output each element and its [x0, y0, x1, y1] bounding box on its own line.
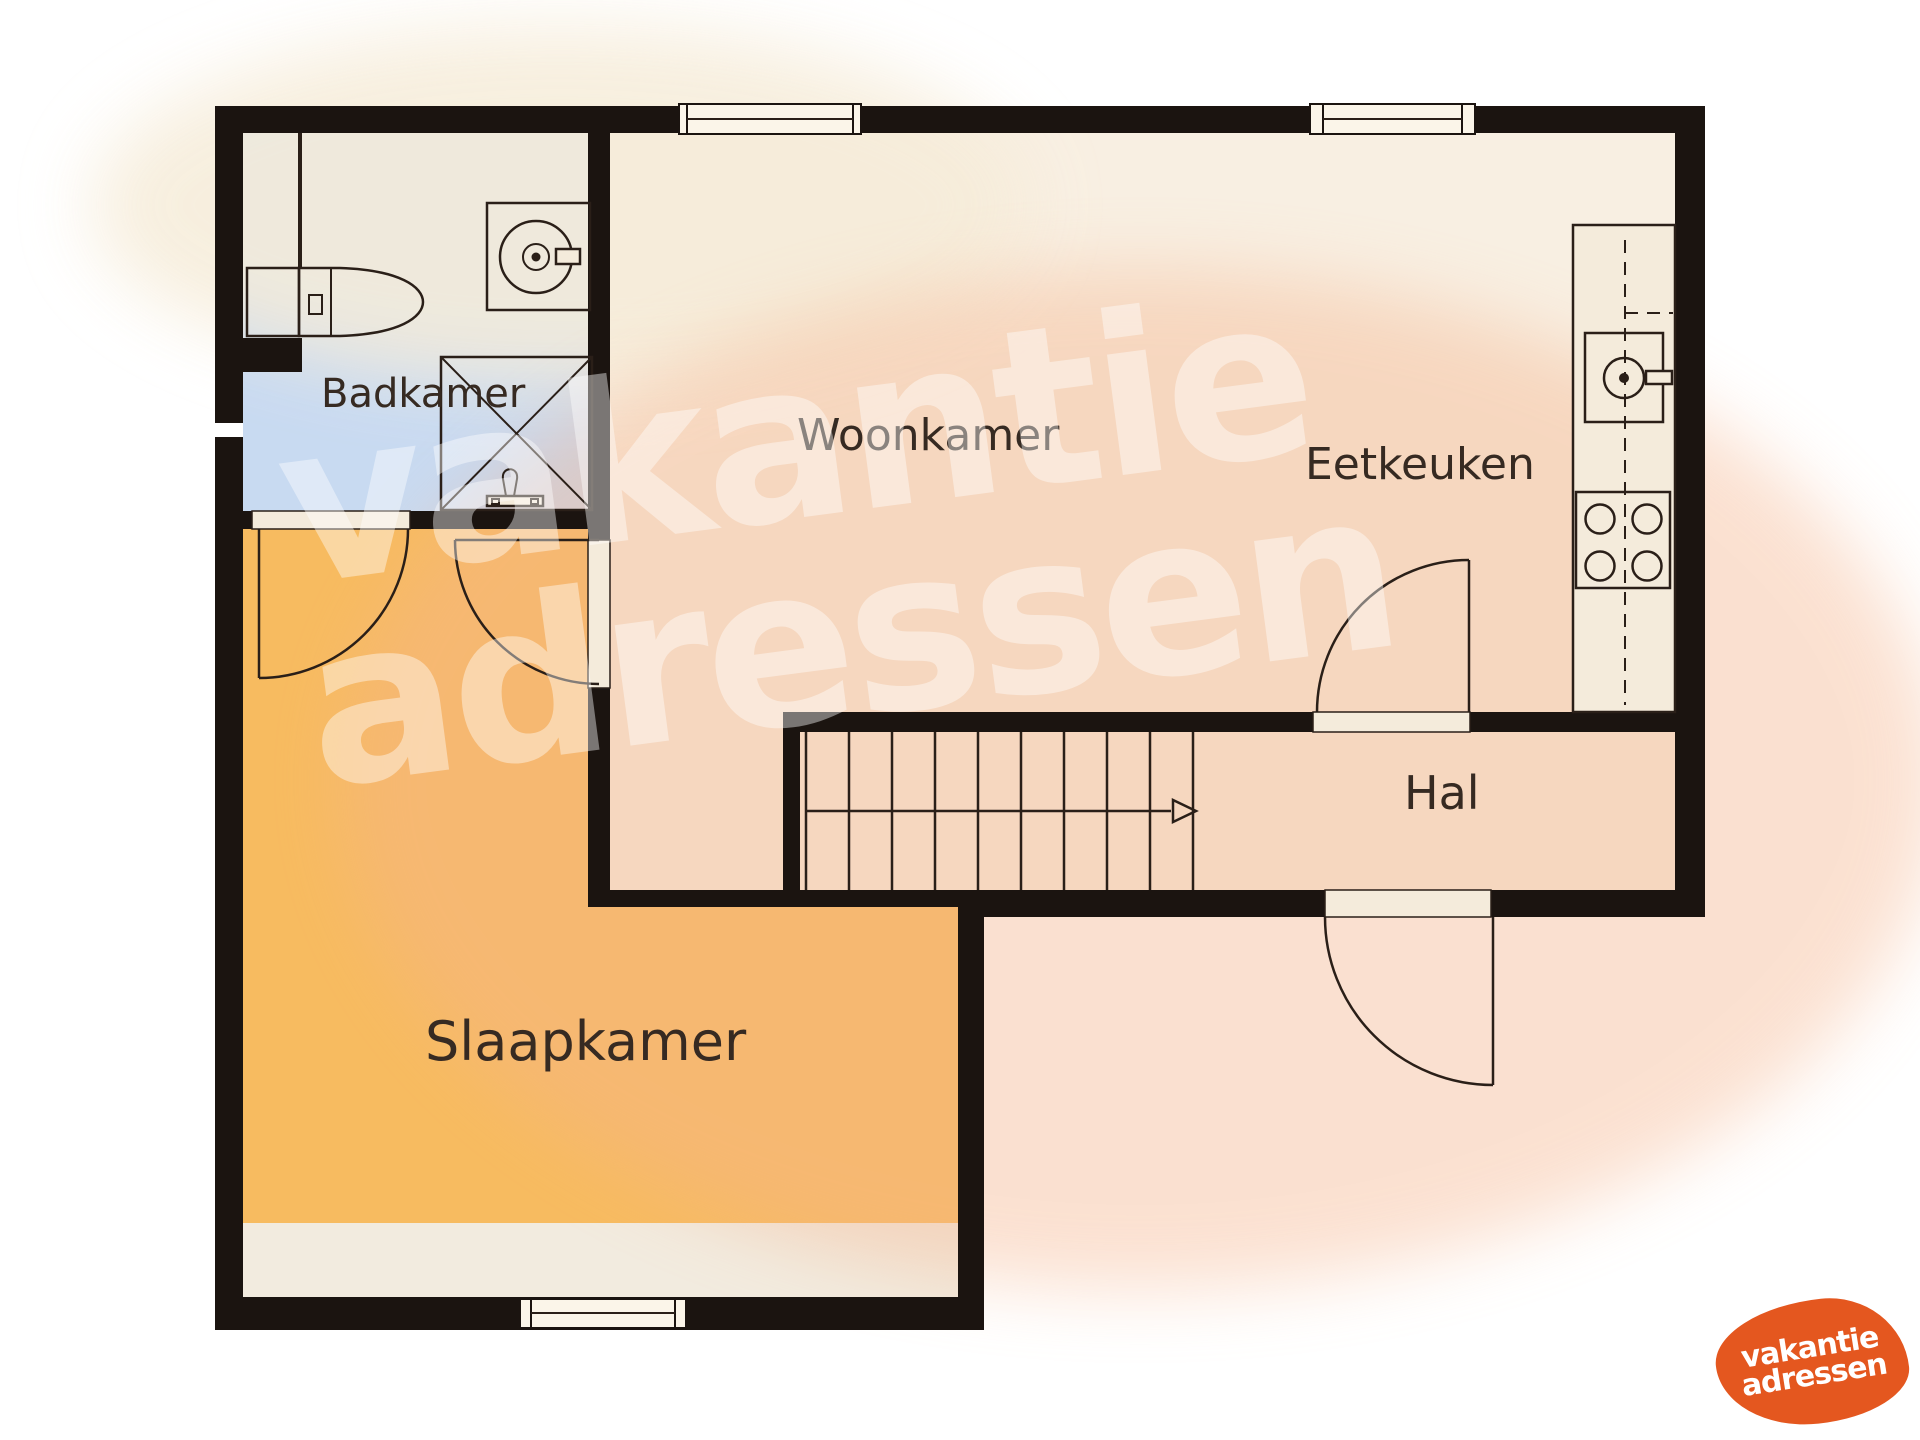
wall-interior-slaapkamer-top [588, 890, 958, 907]
hal-label: Hal [1404, 766, 1480, 820]
window-top-left-icon [679, 104, 861, 134]
stove-burners-icon [1576, 492, 1670, 588]
wall-stub-badkamer [243, 338, 302, 372]
slaapkamer-door-threshold [588, 540, 610, 688]
wall-exterior-left [215, 106, 243, 1330]
wall-interior-stair-left [783, 712, 800, 890]
oven-icon [1585, 333, 1672, 422]
eetkeuken-fixtures [1573, 225, 1675, 712]
front-door-threshold [1325, 890, 1491, 917]
eetkeuken-hal-door-threshold [1313, 712, 1470, 732]
wall-interior-hal-top [783, 712, 1675, 732]
wall-thin-partition-toilet [298, 133, 302, 268]
floor-plan-drawing: Badkamer Woonkamer Eetkeuken Hal Slaapka… [0, 0, 1920, 1440]
wall-interior-badkamer-slaapkamer-right [588, 133, 610, 890]
wall-exterior-top [215, 106, 1705, 133]
window-top-right-icon [1310, 104, 1475, 134]
woonkamer-label: Woonkamer [797, 410, 1060, 461]
window-bottom-icon [520, 1299, 686, 1328]
wall-exterior-right [1675, 106, 1705, 917]
wall-gap-left [215, 423, 243, 437]
vakantieadressen-logo: vakantie adressen [1710, 1290, 1914, 1433]
slaapkamer-label: Slaapkamer [425, 1010, 747, 1073]
badkamer-label: Badkamer [321, 371, 526, 417]
eetkeuken-label: Eetkeuken [1305, 439, 1535, 490]
badkamer-door-threshold [252, 511, 410, 529]
floor-plan-page: Badkamer Woonkamer Eetkeuken Hal Slaapka… [0, 0, 1920, 1440]
wall-exterior-slaapkamer-right [958, 890, 984, 1330]
